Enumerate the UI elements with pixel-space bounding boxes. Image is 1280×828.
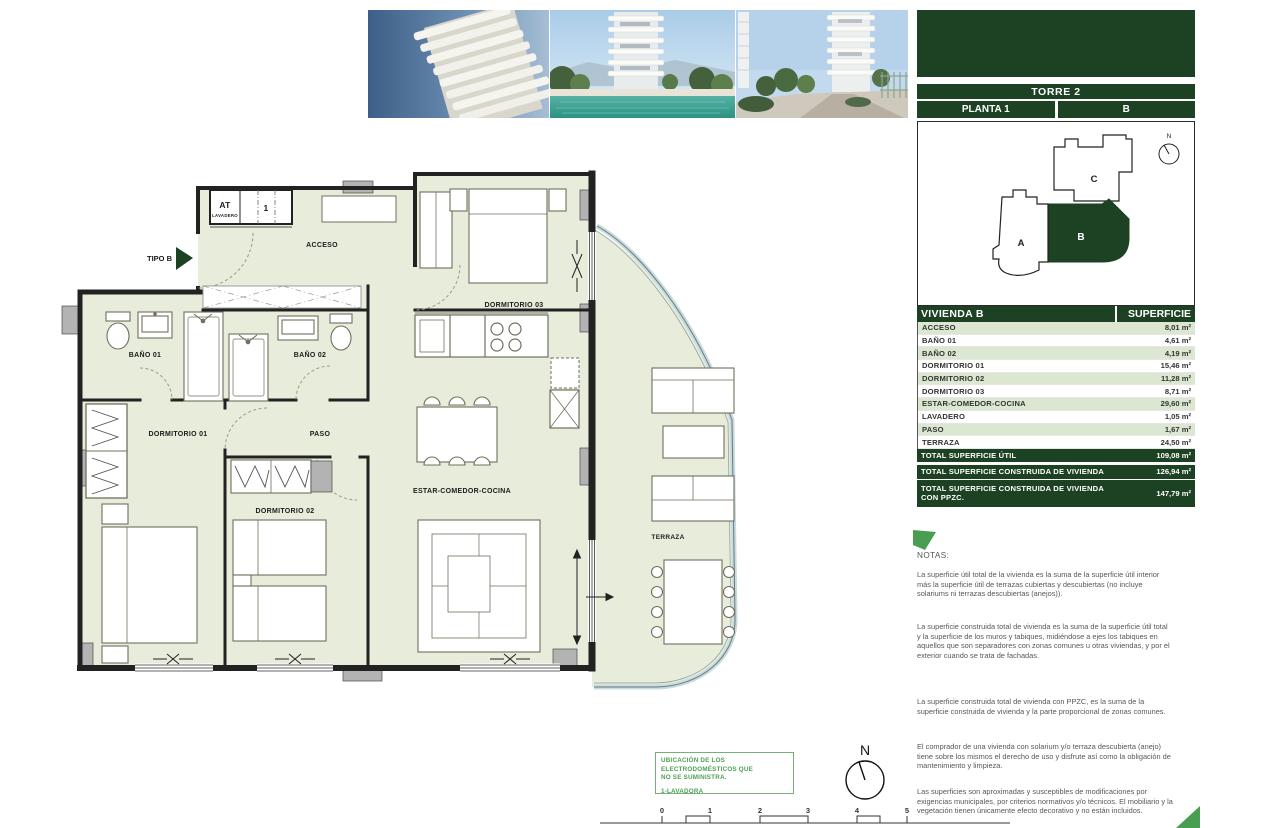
building-render-1 xyxy=(368,10,549,118)
room-area: 8,71 m² xyxy=(1165,387,1195,396)
unit-cell: B xyxy=(1058,101,1196,118)
label-bano02: BAÑO 02 xyxy=(294,350,326,359)
notes-heading: NOTAS: xyxy=(917,551,949,560)
floor-unit-row: PLANTA 1 B xyxy=(917,101,1195,118)
legend-line2: NO SE SUMINISTRA. xyxy=(661,774,788,783)
floorplan-sheet: { "colors":{"dark_green":"#1d4223","row_… xyxy=(0,0,1280,828)
north-compass-icon: N xyxy=(835,740,895,804)
label-dorm02: DORMITORIO 02 xyxy=(255,508,314,515)
table-row: ACCESO8,01 m² xyxy=(918,322,1195,335)
corner-triangle-icon xyxy=(1176,806,1200,828)
label-dorm01: DORMITORIO 01 xyxy=(148,431,207,438)
table-row: PASO1,67 m² xyxy=(918,424,1195,437)
room-area: 24,50 m² xyxy=(1161,438,1195,447)
table-title: VIVIENDA B xyxy=(917,306,1115,322)
room-label: DORMITORIO 03 xyxy=(918,387,1165,396)
scale-tick-0: 0 xyxy=(660,806,664,815)
tower-header: TORRE 2 xyxy=(917,84,1195,99)
unit-c-label: C xyxy=(1091,174,1098,185)
room-label: LAVADERO xyxy=(918,412,1165,421)
room-label: BAÑO 01 xyxy=(918,336,1165,345)
photo-building-path xyxy=(736,10,908,118)
total-ppzc-label: TOTAL SUPERFICIE CONSTRUIDA DE VIVIENDA … xyxy=(917,484,1106,503)
room-label: TERRAZA xyxy=(918,438,1161,447)
total-ppzc-value: 147,79 m² xyxy=(1106,489,1195,498)
floor-label: PLANTA 1 xyxy=(962,104,1010,115)
scale-tick-2: 2 xyxy=(758,806,762,815)
unit-c-outline xyxy=(1054,135,1132,201)
label-bano01: BAÑO 01 xyxy=(129,350,161,359)
total-util-row: TOTAL SUPERFICIE ÚTIL 109,08 m² xyxy=(917,449,1195,462)
photo-building-1 xyxy=(368,10,549,118)
label-estar: ESTAR-COMEDOR-COCINA xyxy=(413,488,511,495)
total-util-value: 109,08 m² xyxy=(1156,451,1195,460)
unit-a-outline xyxy=(993,190,1048,275)
label-terraza: TERRAZA xyxy=(651,534,684,541)
room-label: ACCESO xyxy=(918,323,1165,332)
floorplan-drawing: TIPO B AT LAVADERO 1 ACCESO BAÑO 01 BAÑO… xyxy=(60,160,780,720)
dorm01-furniture xyxy=(102,504,197,663)
table-row: LAVADERO1,05 m² xyxy=(918,411,1195,424)
tower-label: TORRE 2 xyxy=(1031,86,1081,98)
table-row: TERRAZA24,50 m² xyxy=(918,436,1195,449)
terrace-furniture xyxy=(652,368,735,644)
room-label: DORMITORIO 01 xyxy=(918,361,1161,370)
unit-label: B xyxy=(1123,104,1130,115)
total-construida-label: TOTAL SUPERFICIE CONSTRUIDA DE VIVIENDA xyxy=(917,467,1156,476)
total-ppzc-row: TOTAL SUPERFICIE CONSTRUIDA DE VIVIENDA … xyxy=(917,480,1195,507)
table-row: DORMITORIO 0211,28 m² xyxy=(918,373,1195,386)
total-construida-row: TOTAL SUPERFICIE CONSTRUIDA DE VIVIENDA … xyxy=(917,465,1195,480)
scale-tick-1: 1 xyxy=(708,806,712,815)
room-area: 4,19 m² xyxy=(1165,349,1195,358)
scale-tick-5: 5 xyxy=(905,806,909,815)
table-row: ESTAR-COMEDOR-COCINA29,60 m² xyxy=(918,398,1195,411)
label-acceso: ACCESO xyxy=(306,242,338,249)
dining-set xyxy=(417,397,497,465)
appliance-legend: UBICACIÓN DE LOS ELECTRODOMÉSTICOS QUE N… xyxy=(655,752,794,794)
entry-console xyxy=(322,196,396,222)
building-render-3 xyxy=(736,10,908,118)
table-area-header: SUPERFICIE xyxy=(1117,306,1195,322)
label-dorm03: DORMITORIO 03 xyxy=(484,302,543,309)
unit-a-label: A xyxy=(1018,238,1025,249)
room-area: 15,46 m² xyxy=(1161,361,1195,370)
room-label: ESTAR-COMEDOR-COCINA xyxy=(918,399,1161,408)
room-area: 1,67 m² xyxy=(1165,425,1195,434)
room-label: BAÑO 02 xyxy=(918,349,1165,358)
total-construida-value: 126,94 m² xyxy=(1156,467,1195,476)
label-unit-number: 1 xyxy=(263,203,268,213)
note-paragraph: La superficie construida total de vivien… xyxy=(917,697,1173,716)
entry-closet-hatch xyxy=(203,286,361,308)
tipo-marker: TIPO B xyxy=(147,247,193,270)
table-row: DORMITORIO 038,71 m² xyxy=(918,385,1195,398)
table-row: BAÑO 024,19 m² xyxy=(918,347,1195,360)
unit-b-shape xyxy=(1048,199,1129,262)
keyplan-drawing: C B A N xyxy=(918,122,1194,305)
legend-item: 1-LAVADORA xyxy=(661,788,788,797)
room-area: 1,05 m² xyxy=(1165,412,1195,421)
room-area: 29,60 m² xyxy=(1161,399,1195,408)
note-paragraph: El comprador de una vivienda con solariu… xyxy=(917,742,1173,771)
room-area: 11,28 m² xyxy=(1161,374,1195,383)
areas-table: VIVIENDA B SUPERFICIE ACCESO8,01 m² BAÑO… xyxy=(917,306,1195,507)
table-body: ACCESO8,01 m² BAÑO 014,61 m² BAÑO 024,19… xyxy=(917,322,1195,449)
note-paragraph: La superficie construida total de vivien… xyxy=(917,622,1173,661)
brand-logo-block xyxy=(917,10,1195,77)
tipo-arrow-icon xyxy=(176,247,193,270)
room-area: 8,01 m² xyxy=(1165,323,1195,332)
sofa-group xyxy=(418,520,540,652)
note-paragraph: La superficie útil total de la vivienda … xyxy=(917,570,1173,599)
tipo-label: TIPO B xyxy=(147,254,173,263)
dorm02-furniture xyxy=(231,460,332,641)
scale-tick-3: 3 xyxy=(806,806,810,815)
tower-silhouette xyxy=(608,12,664,90)
table-row: BAÑO 014,61 m² xyxy=(918,335,1195,348)
room-label: DORMITORIO 02 xyxy=(918,374,1161,383)
legend-line1: UBICACIÓN DE LOS ELECTRODOMÉSTICOS QUE xyxy=(661,757,788,774)
compass-north-label: N xyxy=(860,742,870,758)
label-paso: PASO xyxy=(310,431,331,438)
scale-tick-4: 4 xyxy=(855,806,860,815)
floor-cell: PLANTA 1 xyxy=(917,101,1055,118)
label-at: AT xyxy=(219,200,231,210)
room-label: PASO xyxy=(918,425,1165,434)
photo-building-pool xyxy=(550,10,735,118)
table-header: VIVIENDA B SUPERFICIE xyxy=(917,306,1195,322)
keyplan-north-icon: N xyxy=(1159,133,1179,164)
notes-marker-icon xyxy=(913,529,939,553)
wardrobe-left xyxy=(86,404,127,498)
label-lavadero: LAVADERO xyxy=(212,213,238,218)
table-row: DORMITORIO 0115,46 m² xyxy=(918,360,1195,373)
keyplan-north-label: N xyxy=(1167,133,1172,140)
total-util-label: TOTAL SUPERFICIE ÚTIL xyxy=(917,451,1156,460)
unit-b-label: B xyxy=(1077,232,1084,243)
building-render-2 xyxy=(550,10,735,118)
keyplan-box: C B A N xyxy=(917,121,1195,306)
scale-bar: 0 1 2 3 4 5 xyxy=(595,804,1025,828)
room-area: 4,61 m² xyxy=(1165,336,1195,345)
